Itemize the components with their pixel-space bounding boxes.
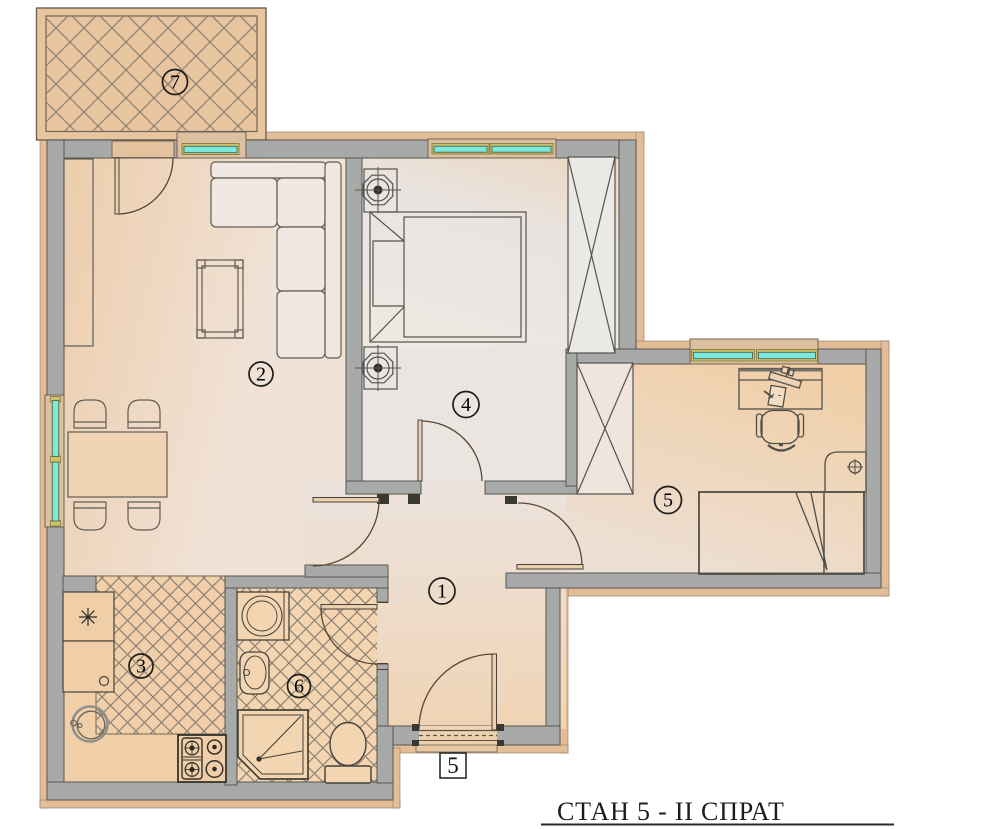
svg-text:2: 2	[256, 364, 266, 386]
svg-text:5: 5	[447, 753, 459, 778]
svg-text:4: 4	[461, 394, 471, 416]
svg-text:СТАН 5 - II СПРАТ: СТАН 5 - II СПРАТ	[557, 797, 785, 826]
svg-text:6: 6	[294, 676, 304, 698]
svg-text:3: 3	[136, 656, 146, 678]
svg-text:1: 1	[437, 581, 447, 603]
svg-text:5: 5	[663, 490, 673, 512]
svg-text:7: 7	[170, 72, 180, 94]
